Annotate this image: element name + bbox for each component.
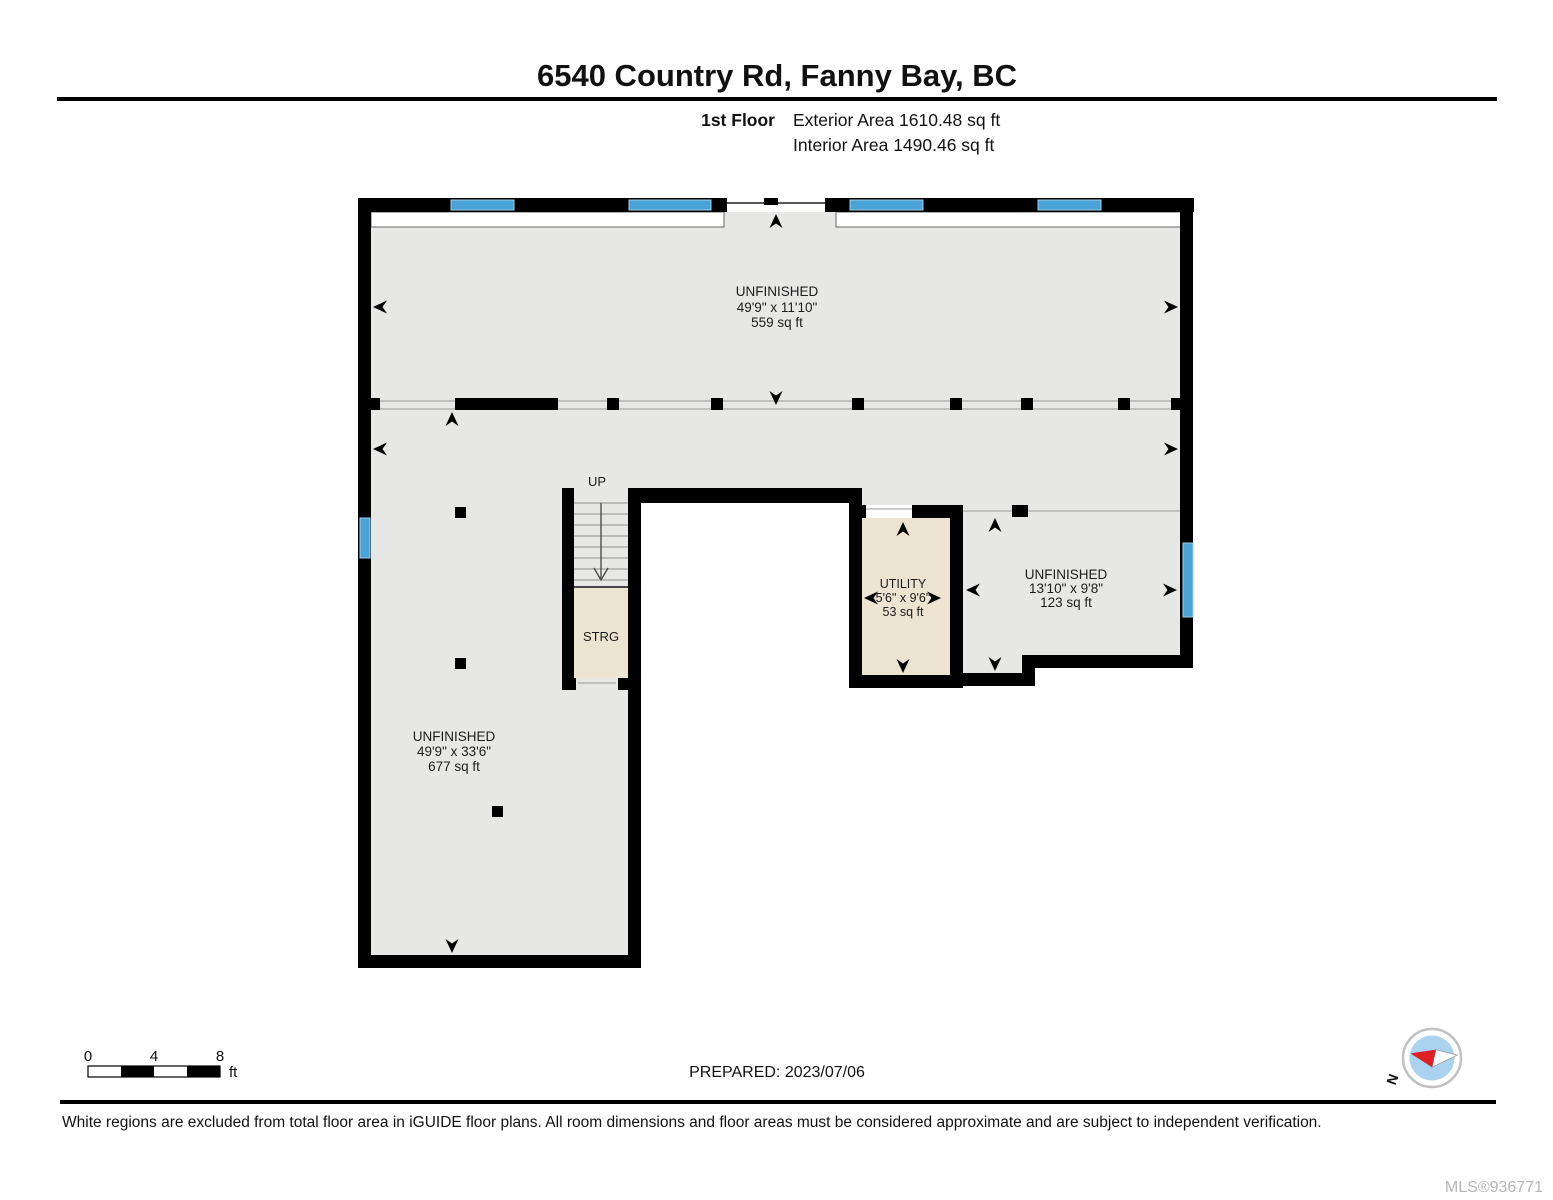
room-dims: 13'10" x 9'8" [1029,581,1103,596]
floor-label: 1st Floor [701,110,775,130]
scale-tick-8: 8 [216,1048,224,1065]
footer-rule [60,1100,1496,1104]
scale-tick-4: 4 [150,1048,158,1065]
room-area: 53 sq ft [883,605,925,619]
post-3 [492,806,503,817]
excluded-white-strip-right [836,212,1183,227]
room-name: UNFINISHED [1025,567,1108,582]
window-top-2 [629,200,711,210]
utility-door-gap [866,505,912,518]
disclaimer-text: White regions are excluded from total fl… [62,1114,1322,1131]
window-top-4 [1038,200,1101,210]
wall-utility-bottom [849,675,963,688]
room-area: 559 sq ft [751,315,803,330]
floor-plan-canvas: 6540 Country Rd, Fanny Bay, BC 1st Floor… [0,0,1553,1200]
compass-north-label: N [1383,1072,1401,1087]
wall-utility-divider [950,505,963,688]
wall-left [358,198,371,968]
room-name: UTILITY [880,577,927,591]
room-name: UNFINISHED [413,729,496,744]
interior-area: Interior Area 1490.46 sq ft [793,135,995,155]
scale-bar: 0 4 8 ft [84,1048,238,1081]
excluded-white-strip-left [371,212,724,227]
compass-icon: N [1383,1029,1461,1087]
post-2 [455,658,466,669]
wall-bottom-left-room [358,955,641,968]
room-dims: 49'9" x 11'10" [737,300,818,315]
wall-storage-door-stub-left [562,678,576,690]
room-area: 677 sq ft [428,759,480,774]
wall-cutout-top [628,488,862,503]
post-1 [455,507,466,518]
window-top-3 [850,200,923,210]
window-top-1 [451,200,514,210]
exterior-area: Exterior Area 1610.48 sq ft [793,110,1000,130]
wall-stair-right [628,488,641,968]
scale-tick-0: 0 [84,1048,92,1065]
window-left [360,518,370,558]
scale-unit: ft [229,1064,238,1081]
room-dims: 5'6" x 9'6" [876,591,931,605]
wall-storage-door-stub-right [618,678,641,690]
floor-plan-page: 6540 Country Rd, Fanny Bay, BC 1st Floor… [0,0,1553,1200]
page-title: 6540 Country Rd, Fanny Bay, BC [537,58,1017,93]
entrance-doorway [727,198,825,212]
room-name: UNFINISHED [736,284,819,299]
prepared-date: PREPARED: 2023/07/06 [689,1064,865,1081]
wall-unfinished-right-bottom-b [1022,655,1193,668]
room-area: 123 sq ft [1040,595,1092,610]
storage-label: STRG [583,629,619,644]
stairs-up-label: UP [588,474,606,489]
wall-stair-left [562,488,574,690]
window-right [1183,543,1193,617]
header-rule [57,97,1497,101]
room-dims: 49'9" x 33'6" [417,744,491,759]
mls-number: MLS®936771 [1445,1179,1543,1196]
